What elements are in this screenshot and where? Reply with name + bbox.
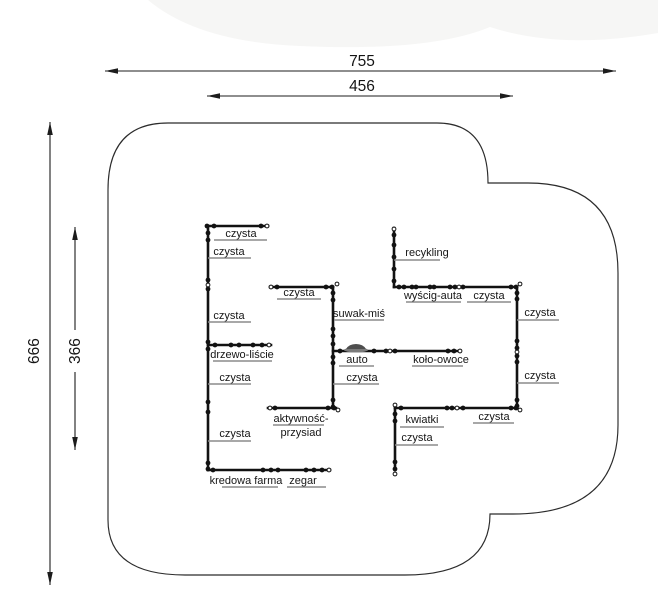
junction-dot xyxy=(331,342,336,347)
junction-dot xyxy=(229,343,234,348)
junction-dot xyxy=(402,285,407,290)
panel-czysta-7: czysta xyxy=(346,372,378,384)
junction-node-circle xyxy=(335,282,339,286)
junction-dot xyxy=(273,406,278,411)
junction-dot xyxy=(515,398,520,403)
junction-dot xyxy=(213,343,218,348)
junction-dot xyxy=(206,340,211,345)
junction-dot xyxy=(206,231,211,236)
junction-node-circle xyxy=(515,350,519,354)
junction-dot xyxy=(392,243,397,248)
junction-dot xyxy=(393,467,398,472)
panel-czysta-6: czysta xyxy=(283,287,315,299)
junction-dot xyxy=(331,327,336,332)
junction-dot xyxy=(515,360,520,365)
junction-dot xyxy=(509,406,514,411)
junction-node-circle xyxy=(269,285,273,289)
junction-dot xyxy=(331,398,336,403)
junction-dot xyxy=(260,343,265,348)
panel-kredowa-farma: kredowa farma xyxy=(210,475,284,487)
top-background-band xyxy=(148,0,658,47)
panel-recykling: recykling xyxy=(405,247,448,259)
junction-dot xyxy=(212,224,217,229)
label-leader-lines xyxy=(208,240,559,487)
junction-dot xyxy=(206,461,211,466)
technical-drawing: 755 456 666 366 czystaczystaczystadrzewo… xyxy=(0,0,658,603)
junction-node-circle xyxy=(392,227,396,231)
junction-dot xyxy=(515,297,520,302)
panel-czysta-9: czysta xyxy=(524,307,556,319)
junction-node-circle xyxy=(518,408,522,412)
junction-dot xyxy=(237,343,242,348)
junction-dot xyxy=(251,343,256,348)
junction-dot xyxy=(392,279,397,284)
junction-dot xyxy=(206,238,211,243)
panel-drzewo-liscie: drzewo-liście xyxy=(210,349,274,361)
junction-dot xyxy=(393,460,398,465)
panel-wyscig-auta: wyścig-auta xyxy=(403,290,463,302)
junction-dot xyxy=(276,468,281,473)
panel-przysiad: przysiad xyxy=(281,427,322,439)
junction-node-circle xyxy=(268,406,272,410)
junction-dot xyxy=(269,468,274,473)
junction-dot xyxy=(331,334,336,339)
junction-dot xyxy=(211,468,216,473)
junction-dot xyxy=(206,410,211,415)
junction-node-circle xyxy=(518,282,522,286)
panel-czysta-5: czysta xyxy=(219,428,251,440)
junction-dot xyxy=(331,298,336,303)
junction-dot xyxy=(392,233,397,238)
junction-dot xyxy=(515,339,520,344)
junction-node-circle xyxy=(267,343,271,347)
panel-czysta-4: czysta xyxy=(219,372,251,384)
junction-dot xyxy=(206,278,211,283)
junction-dot xyxy=(312,468,317,473)
junction-node-circle xyxy=(388,349,392,353)
panel-czysta-10: czysta xyxy=(524,370,556,382)
junction-dot xyxy=(206,467,211,472)
panel-kwiatki: kwiatki xyxy=(405,414,438,426)
junction-node-circle xyxy=(457,285,461,289)
junction-dot xyxy=(393,349,398,354)
junction-dot xyxy=(304,468,309,473)
junction-node-circle xyxy=(455,406,459,410)
junction-dot xyxy=(397,285,402,290)
junction-dot xyxy=(324,285,329,290)
junction-dot xyxy=(399,406,404,411)
panel-aktywnosc: aktywność- xyxy=(273,413,328,425)
junction-dot xyxy=(320,468,325,473)
junction-dot xyxy=(392,255,397,260)
technical-drawing-page: 755 456 666 366 czystaczystaczystadrzewo… xyxy=(0,0,658,603)
junction-dot xyxy=(445,406,450,411)
dimension-lines: 755 456 666 366 xyxy=(26,53,616,585)
dimension-label-total-height: 666 xyxy=(26,338,43,364)
junction-dot xyxy=(338,349,343,354)
junction-dot xyxy=(450,406,455,411)
junction-dot xyxy=(514,285,519,290)
junction-dot xyxy=(509,285,514,290)
junction-dot xyxy=(331,355,336,360)
junction-dot xyxy=(206,400,211,405)
junction-dot xyxy=(414,285,419,290)
junction-dot xyxy=(515,291,520,296)
junction-dot xyxy=(261,468,266,473)
junction-node-circle xyxy=(458,349,462,353)
junction-dot xyxy=(331,361,336,366)
panel-auto: auto xyxy=(346,354,367,366)
junction-node-circle xyxy=(336,408,340,412)
junction-node-circle xyxy=(206,283,210,287)
junction-dot xyxy=(331,291,336,296)
panel-czysta-11: czysta xyxy=(478,411,510,423)
panel-czysta-2: czysta xyxy=(213,246,245,258)
junction-dot xyxy=(393,412,398,417)
panel-czysta-8: czysta xyxy=(473,290,505,302)
junction-dot xyxy=(393,419,398,424)
junction-dot xyxy=(432,285,437,290)
junction-dot xyxy=(446,349,451,354)
panel-suwak-mis: suwak-miś xyxy=(333,308,385,320)
panel-czysta-3: czysta xyxy=(213,310,245,322)
panel-czysta-12: czysta xyxy=(401,432,433,444)
junction-dot xyxy=(259,224,264,229)
panel-zegar: zegar xyxy=(289,475,317,487)
panel-kolo-owoce: koło-owoce xyxy=(413,354,469,366)
junction-dot xyxy=(372,349,377,354)
junction-dot xyxy=(330,285,335,290)
junction-dot xyxy=(326,406,331,411)
junction-node-circle xyxy=(393,472,397,476)
dimension-label-inner-height: 366 xyxy=(67,338,84,364)
junction-dot xyxy=(448,285,453,290)
dimension-label-inner-width: 456 xyxy=(349,78,375,95)
junction-node-circle xyxy=(327,468,331,472)
panel-labels: czystaczystaczystadrzewo-liścieczystaczy… xyxy=(210,228,557,487)
junction-dot xyxy=(205,224,210,229)
junction-dot xyxy=(452,349,457,354)
junction-node-circle xyxy=(265,224,269,228)
junction-dot xyxy=(392,267,397,272)
junction-node-circle xyxy=(393,403,397,407)
dimension-label-total-width: 755 xyxy=(349,53,375,70)
junction-dot xyxy=(275,285,280,290)
panel-czysta-1: czysta xyxy=(225,228,257,240)
car-icon xyxy=(344,344,368,352)
junction-dot xyxy=(461,406,466,411)
